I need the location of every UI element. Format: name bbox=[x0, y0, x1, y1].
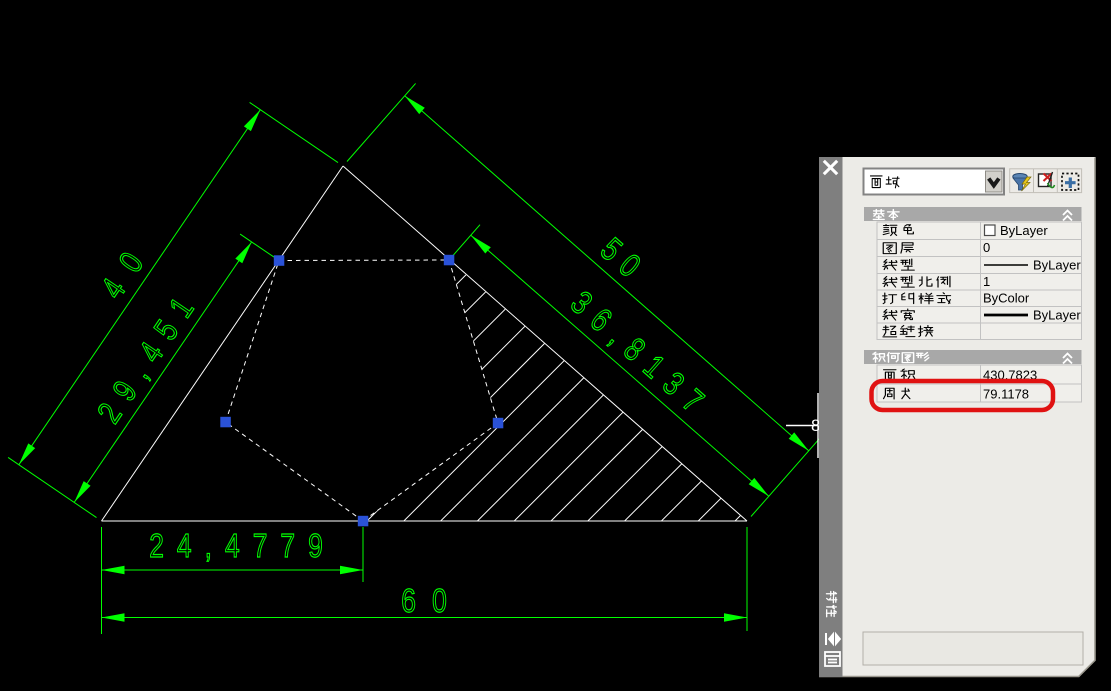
svg-text:ByColor: ByColor bbox=[983, 291, 1030, 306]
svg-text:ByLayer: ByLayer bbox=[1000, 223, 1048, 238]
svg-text:1: 1 bbox=[983, 274, 990, 289]
svg-text:79.1178: 79.1178 bbox=[983, 387, 1029, 402]
svg-text:0: 0 bbox=[983, 240, 990, 255]
svg-text:ByLayer: ByLayer bbox=[1033, 258, 1081, 273]
svg-text:ByLayer: ByLayer bbox=[1033, 308, 1081, 323]
